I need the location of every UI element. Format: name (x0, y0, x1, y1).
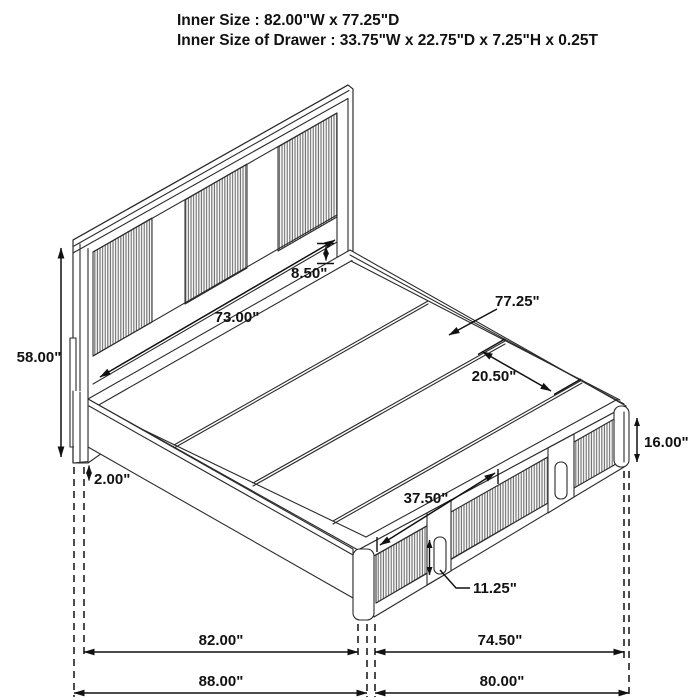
dim-slat-panel-width-label: 20.50" (472, 368, 517, 385)
diagram-canvas: 73.00" 58.00" 8.50" 77.25" 20.50" 16.00" (0, 0, 700, 700)
dim-headboard-deck-gap-label: 8.50" (291, 265, 327, 282)
header-line-1: Inner Size : 82.00"W x 77.25"D (177, 12, 399, 29)
corner-post-right (614, 406, 629, 467)
dim-base-clearance-label: 2.00" (94, 471, 130, 488)
drawer-handle-2 (555, 462, 567, 499)
dim-inner-width-label: 82.00" (199, 632, 244, 649)
dim-headboard-height-label: 58.00" (17, 349, 62, 366)
dim-footboard-height-label: 16.00" (644, 434, 689, 451)
dim-headboard-inner-width-label: 73.00" (215, 309, 260, 326)
headboard-left-leg (73, 391, 88, 463)
bed-dimension-diagram: 73.00" 58.00" 8.50" 77.25" 20.50" 16.00" (0, 0, 700, 700)
dim-overall-width-label: 88.00" (199, 673, 244, 690)
header-line-2: Inner Size of Drawer : 33.75"W x 22.75"D… (177, 32, 598, 49)
dim-drawer-handle-height-label: 11.25" (473, 580, 517, 597)
drawer-handle-1 (434, 537, 446, 574)
dim-drawer-front-width-label: 37.50" (404, 490, 449, 507)
dim-footboard-outer-width-label: 74.50" (478, 632, 523, 649)
dim-overall-depth-label: 80.00" (480, 673, 525, 690)
dim-inner-depth-label: 77.25" (495, 293, 540, 310)
corner-post-front (353, 549, 374, 620)
